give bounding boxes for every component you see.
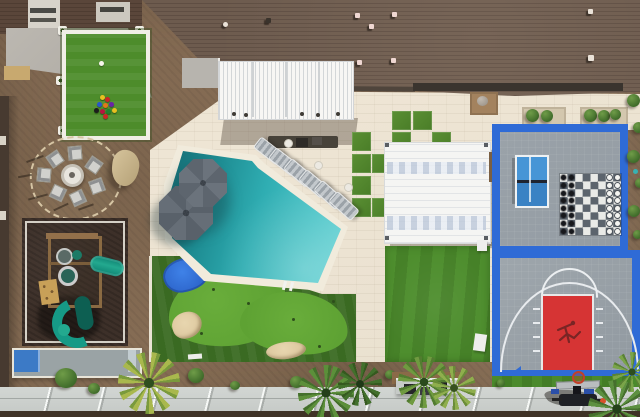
lane-hash-mark: [596, 308, 603, 310]
counter-item: [312, 137, 322, 145]
black-chess-piece: [569, 229, 574, 234]
planter-pot: [300, 112, 304, 116]
black-chess-piece: [569, 198, 574, 203]
hoop-leg: [552, 398, 562, 401]
billiard-ball: [97, 102, 102, 107]
bush: [55, 368, 77, 388]
billiard-ball: [106, 109, 111, 114]
bush: [541, 110, 553, 122]
side-table: [284, 139, 293, 148]
jumpman-logo: [554, 318, 584, 348]
neighbor-wall: [96, 2, 130, 22]
black-chess-piece: [569, 206, 574, 211]
black-chess-piece: [561, 175, 566, 180]
bush: [627, 150, 640, 163]
black-chess-piece: [569, 191, 574, 196]
putting-green-border: [149, 256, 152, 362]
shuffleboard-blue-end: [14, 350, 40, 372]
golf-hole: [212, 288, 215, 291]
bush: [526, 109, 539, 122]
side-table: [344, 183, 353, 192]
fire-pit-center: [69, 172, 75, 178]
boulder: [110, 149, 141, 188]
white-chess-piece: [615, 213, 620, 218]
lawn-billiards-court: [62, 30, 150, 140]
white-chess-piece: [615, 198, 620, 203]
lane-hash-mark: [596, 322, 603, 324]
cabana-louver-band: [387, 216, 486, 230]
white-chess-piece: [615, 229, 620, 234]
ping-pong-centerline: [529, 157, 531, 202]
black-chess-piece: [569, 183, 574, 188]
lane-hash-mark: [533, 350, 540, 352]
fence-cap: [0, 211, 6, 220]
white-chess-piece: [607, 213, 612, 218]
bush: [88, 383, 100, 394]
black-chess-piece: [569, 175, 574, 180]
white-chess-piece: [607, 191, 612, 196]
bush: [188, 368, 204, 383]
black-chess-piece: [569, 213, 574, 218]
black-chess-piece: [561, 206, 566, 211]
white-chess-piece: [607, 229, 612, 234]
bush: [627, 94, 640, 107]
neighbor-wall: [28, 0, 60, 30]
palm-tree: [118, 352, 180, 414]
billiard-ball: [105, 97, 110, 102]
cabana-post: [385, 143, 389, 147]
roof-vent: [588, 55, 594, 61]
planter-pot: [244, 113, 248, 117]
billiard-ball: [112, 108, 117, 113]
ball-tray: [188, 354, 202, 360]
white-chess-piece: [615, 221, 620, 226]
patio-cover-beam: [285, 62, 287, 117]
bush: [497, 379, 505, 387]
bush: [635, 178, 640, 188]
patio-cover-gray-section: [182, 58, 220, 88]
black-chess-piece: [561, 183, 566, 188]
side-table: [314, 161, 323, 170]
cabana-post: [484, 143, 488, 147]
roof-gutter: [413, 83, 623, 91]
black-chess-piece: [561, 221, 566, 226]
lane-hash-mark: [533, 322, 540, 324]
neighbor-window: [30, 18, 56, 22]
billiard-ball: [103, 103, 108, 108]
bush: [633, 230, 640, 239]
palm-tree: [338, 362, 382, 406]
roof-vent: [355, 13, 360, 18]
chess-pieces: [560, 174, 621, 235]
grill: [296, 138, 308, 147]
patio-cover-beam: [318, 62, 320, 117]
lane-hash-mark: [596, 336, 603, 338]
black-chess-piece: [561, 191, 566, 196]
turf-square: [413, 111, 432, 130]
climbing-dome: [58, 266, 78, 286]
white-chess-piece: [615, 191, 620, 196]
play-structure-beam: [50, 262, 94, 265]
roof-vent: [588, 9, 593, 14]
billiard-ball: [109, 102, 114, 107]
bush: [584, 109, 597, 122]
lawn-pad: [477, 240, 487, 251]
turf-square: [352, 176, 371, 195]
turf-square: [392, 111, 411, 130]
roof-vent: [357, 60, 362, 65]
black-chess-piece: [561, 213, 566, 218]
turf-square: [352, 132, 371, 151]
golf-hole: [200, 332, 203, 335]
roof-vent: [391, 58, 396, 63]
planter-pot: [232, 112, 236, 116]
cabana-post: [385, 236, 389, 240]
backyard-aerial-photo: Aerial view of a luxury backyard with fr…: [0, 0, 640, 417]
bush: [598, 110, 610, 122]
bush: [628, 205, 640, 217]
basketball-rim: [572, 371, 585, 384]
lawn-pad: [473, 333, 487, 352]
cabana-louver-band: [387, 162, 486, 174]
fire-pit-chair: [36, 167, 51, 182]
lane-hash-mark: [596, 350, 603, 352]
bush: [230, 381, 240, 390]
billiard-ball: [94, 108, 99, 113]
lane-hash-mark: [533, 336, 540, 338]
bush: [633, 122, 640, 133]
golf-hole: [247, 302, 250, 305]
white-chess-piece: [607, 198, 612, 203]
ping-pong-table: [515, 155, 549, 208]
white-chess-piece: [615, 175, 620, 180]
play-canopy: [72, 250, 82, 260]
neighbor-window: [100, 7, 124, 12]
planter-pot: [316, 113, 320, 117]
white-chess-piece: [607, 206, 612, 211]
climbing-wall: [38, 279, 59, 305]
slide-exit: [58, 324, 70, 336]
black-chess-piece: [569, 221, 574, 226]
climbing-dome: [56, 248, 73, 265]
white-chess-piece: [607, 183, 612, 188]
roof-vent: [369, 24, 374, 29]
white-chess-piece: [607, 221, 612, 226]
roof-vent: [223, 22, 228, 27]
turf-square: [352, 154, 371, 173]
black-chess-piece: [561, 229, 566, 234]
neighbor-tan-wall: [4, 66, 30, 80]
white-chess-piece: [607, 175, 612, 180]
palm-tree: [432, 366, 476, 410]
bush: [610, 109, 621, 120]
white-chess-piece: [615, 183, 620, 188]
lane-hash-mark: [533, 308, 540, 310]
rock: [477, 96, 488, 106]
play-structure-beam: [46, 233, 98, 239]
roof-vent: [392, 12, 397, 17]
cue-ball: [99, 61, 104, 66]
fire-pit-chair: [67, 145, 82, 160]
planter-pot: [336, 112, 340, 116]
teal-ball: [633, 169, 638, 174]
black-chess-piece: [561, 198, 566, 203]
golf-hole: [332, 300, 335, 303]
white-chess-piece: [615, 206, 620, 211]
golf-hole: [292, 318, 295, 321]
fence-cap: [0, 136, 6, 145]
billiard-ball: [103, 114, 108, 119]
golf-hole: [318, 345, 321, 348]
neighbor-window: [30, 8, 56, 13]
basketball-key: [541, 294, 594, 370]
roof-vent: [266, 18, 271, 23]
patio-cover-beam: [252, 62, 254, 117]
hoop-arm-blue: [551, 389, 559, 394]
